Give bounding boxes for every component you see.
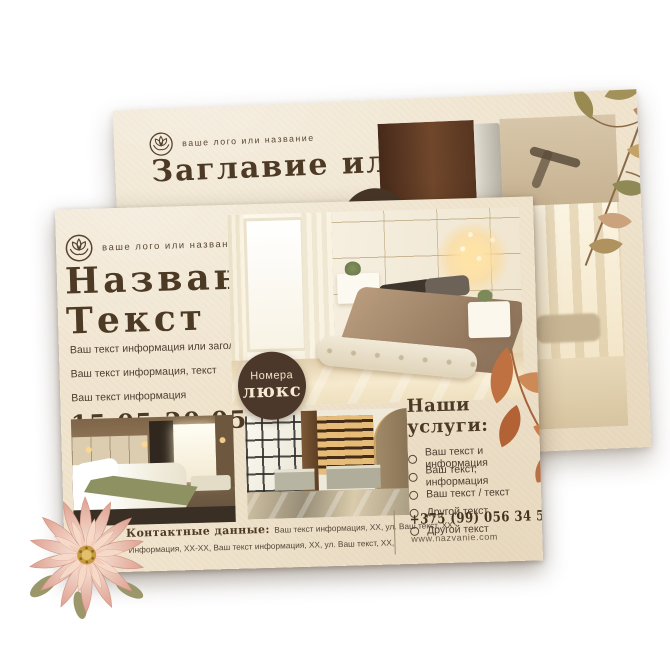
ring-bullet-icon [409, 490, 418, 499]
window [243, 217, 307, 353]
front-flyer: ваше лого или название Название Текст Ва… [55, 196, 543, 573]
floor-reflection [245, 489, 410, 520]
sofa [536, 313, 601, 344]
nightstand [468, 301, 511, 338]
badge-line2: люкс [242, 380, 302, 403]
reception-desk [326, 465, 381, 489]
plant [345, 261, 361, 275]
website-url: www.nazvanie.com [411, 532, 498, 544]
contacts-divider [394, 510, 396, 554]
front-logo-text: ваше лого или название [102, 238, 243, 253]
service-item: Ваш текст, информация [408, 464, 538, 486]
ring-bullet-icon [408, 472, 417, 481]
flyer-mockup-stage: ваше лого или название Заглавие или [0, 0, 670, 670]
ring-bullet-icon [408, 454, 417, 463]
contacts-label: Контактные данные: [126, 523, 270, 540]
small-photo-hotel-room [71, 415, 236, 526]
front-flyer-paper: ваше лого или название Название Текст Ва… [55, 196, 543, 573]
small-photo-lobby [245, 408, 410, 519]
reception-desk [274, 469, 315, 491]
services-title: Наши услуги: [406, 392, 537, 438]
back-logo-text: ваше лого или название [182, 133, 315, 149]
